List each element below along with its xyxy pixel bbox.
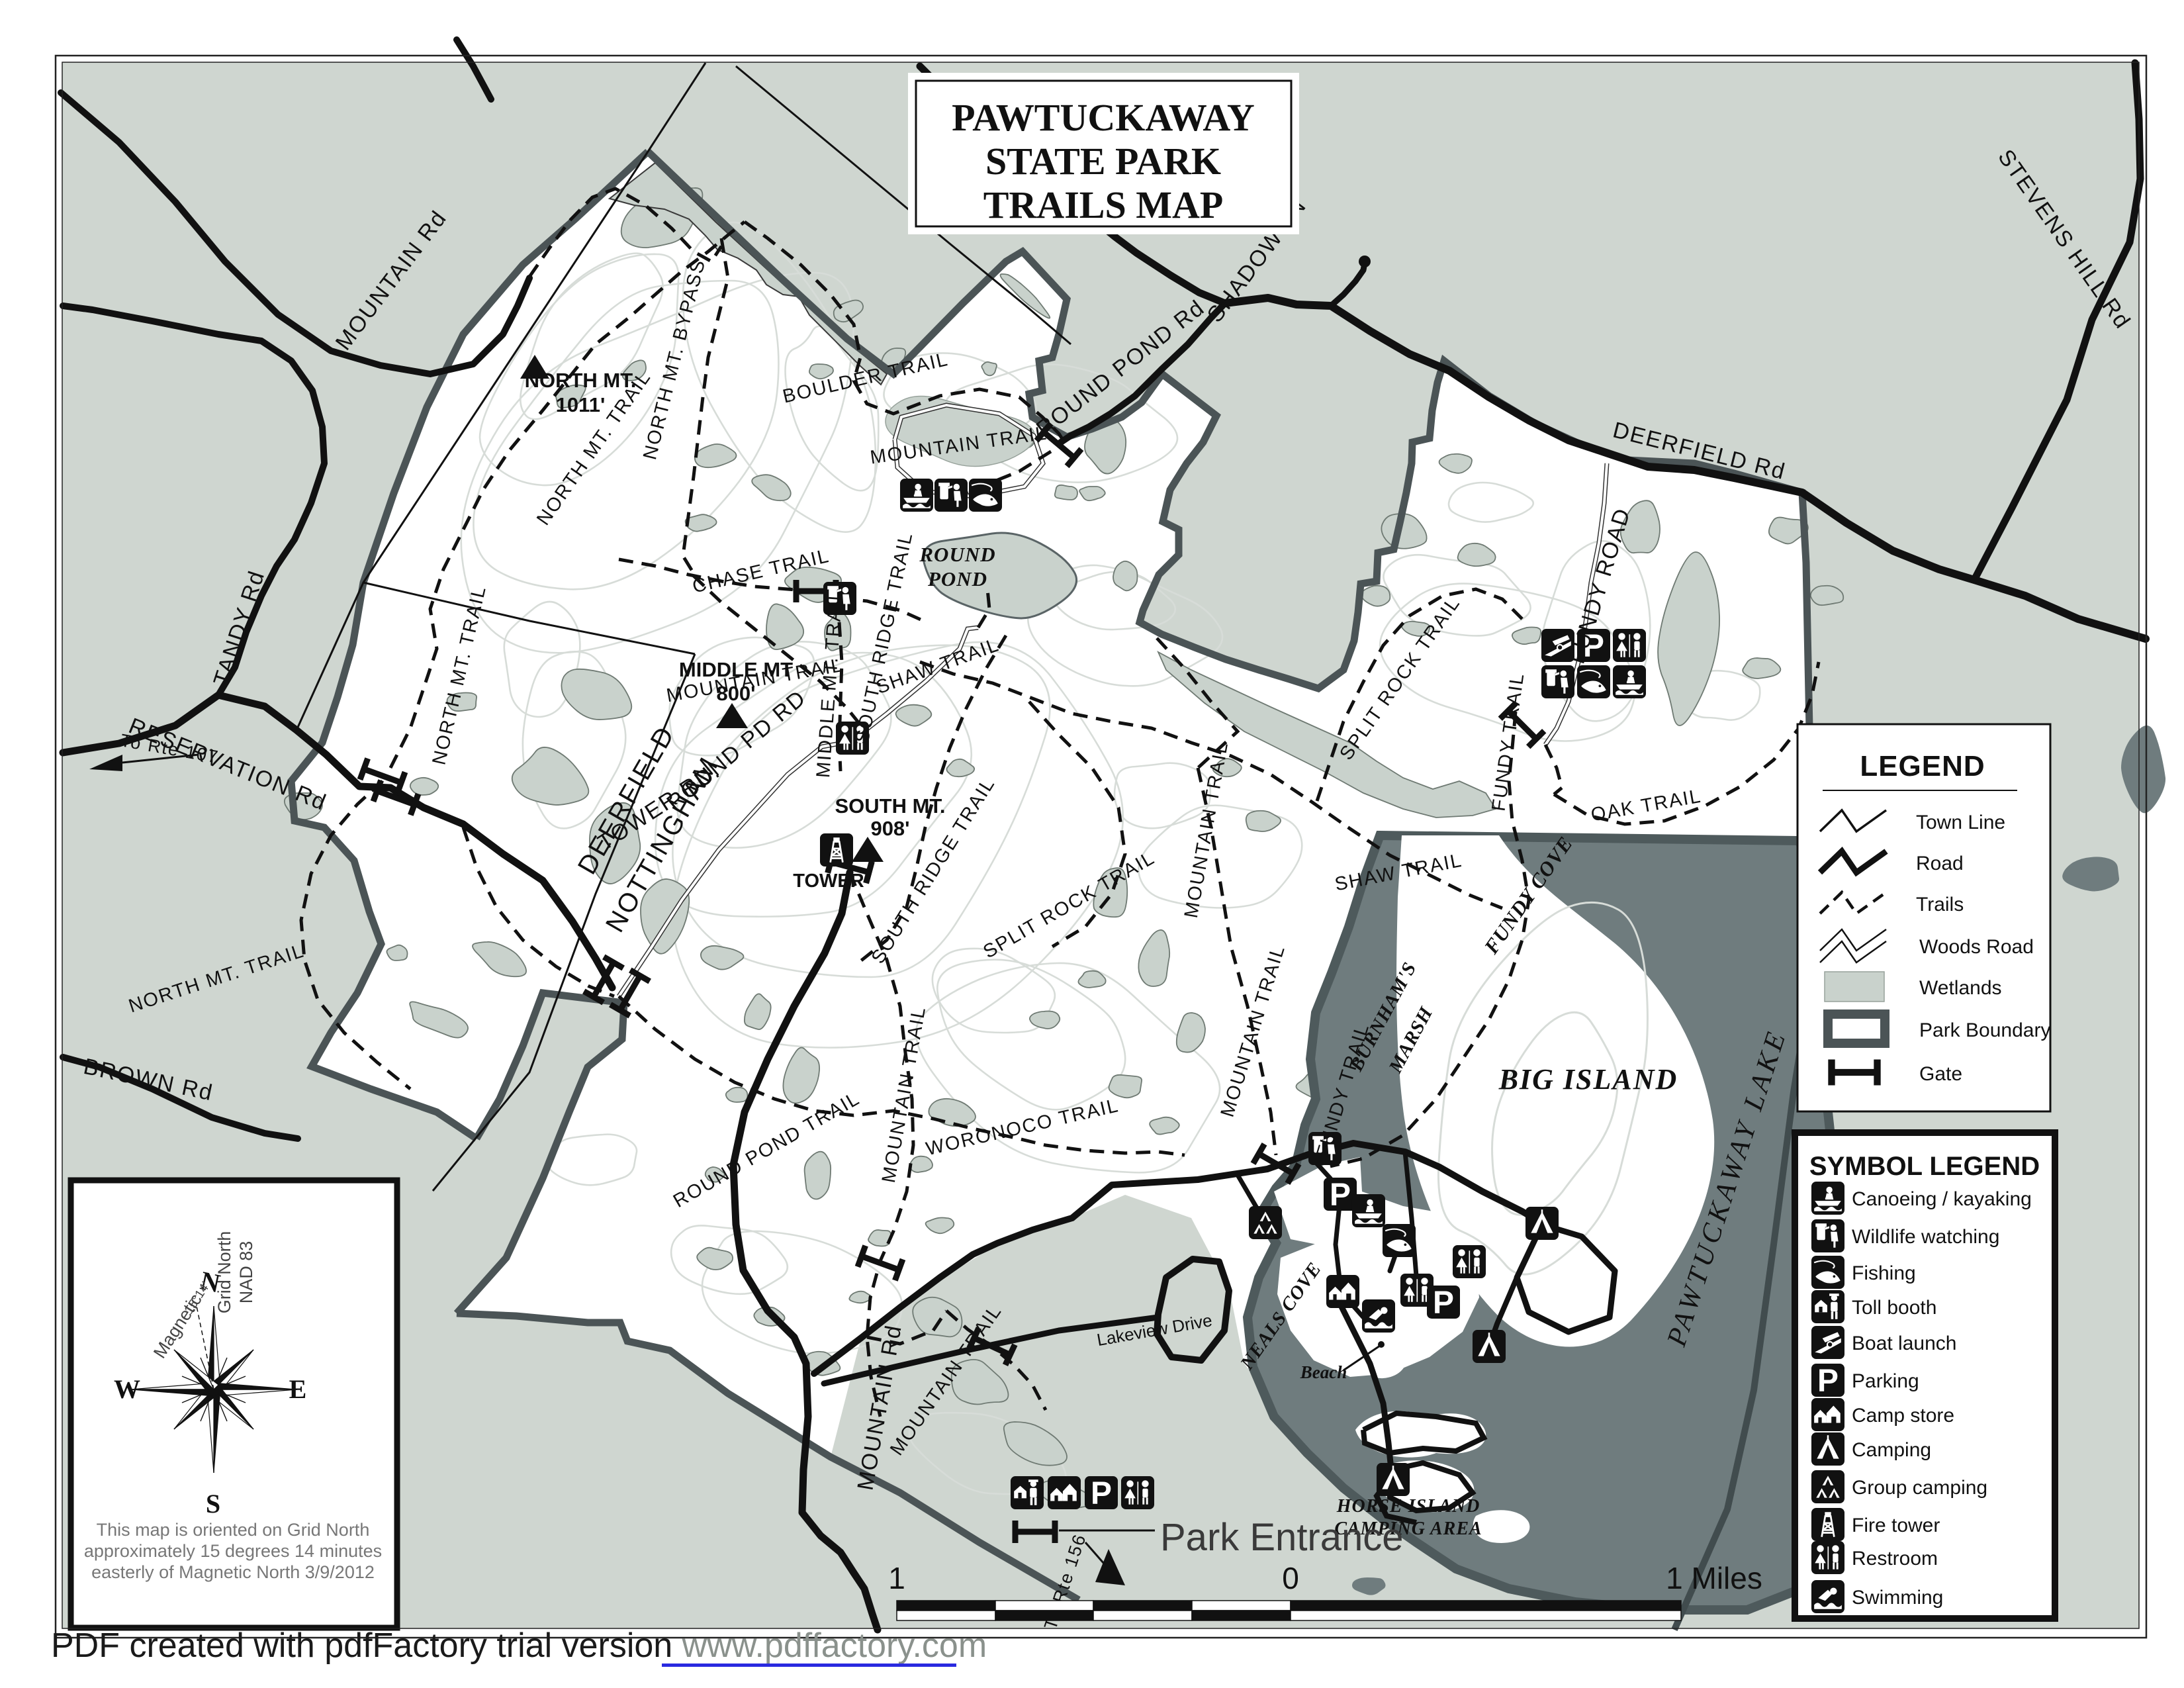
svg-text:Parking: Parking (1852, 1370, 1919, 1392)
svg-text:BIG ISLAND: BIG ISLAND (1498, 1063, 1678, 1096)
svg-text:Road: Road (1916, 853, 1964, 874)
svg-text:approximately 15 degrees 14 mi: approximately 15 degrees 14 minutes (84, 1541, 382, 1561)
svg-text:W: W (114, 1374, 142, 1404)
svg-text:STATE PARK: STATE PARK (985, 140, 1221, 183)
svg-text:1 Miles: 1 Miles (1666, 1561, 1762, 1595)
svg-text:ROUND: ROUND (919, 543, 995, 566)
svg-text:Restroom: Restroom (1852, 1548, 1938, 1570)
svg-text:TOWER: TOWER (793, 870, 864, 892)
svg-text:HORSE ISLAND: HORSE ISLAND (1336, 1496, 1480, 1517)
svg-text:Group camping: Group camping (1852, 1477, 1987, 1499)
svg-text:Fire tower: Fire tower (1852, 1515, 1940, 1536)
svg-text:Swimming: Swimming (1852, 1587, 1943, 1609)
svg-text:This map is oriented on Grid N: This map is oriented on Grid North (97, 1520, 370, 1540)
svg-text:1011': 1011' (556, 393, 606, 416)
svg-text:Trails: Trails (1916, 894, 1964, 915)
svg-text:POND: POND (927, 567, 987, 590)
svg-text:NAD 83: NAD 83 (236, 1241, 256, 1304)
svg-text:Camp store: Camp store (1852, 1405, 1954, 1427)
svg-text:Town Line: Town Line (1916, 812, 2005, 833)
svg-text:Wetlands: Wetlands (1919, 977, 2002, 999)
svg-text:Fishing: Fishing (1852, 1262, 1916, 1284)
svg-text:Beach: Beach (1300, 1362, 1347, 1382)
svg-text:LEGEND: LEGEND (1860, 750, 1985, 782)
svg-text:Grid North: Grid North (214, 1231, 234, 1314)
svg-text:1: 1 (888, 1561, 905, 1595)
svg-text:SOUTH MT.: SOUTH MT. (835, 794, 945, 818)
svg-text:MIDDLE MT: MIDDLE MT (679, 658, 793, 681)
svg-text:800': 800' (716, 682, 755, 705)
svg-text:E: E (289, 1374, 308, 1404)
svg-text:Wildlife watching: Wildlife watching (1852, 1226, 1999, 1248)
svg-text:easterly of Magnetic North 3/9: easterly of Magnetic North 3/9/2012 (91, 1562, 375, 1582)
svg-text:Woods Road: Woods Road (1919, 936, 2034, 958)
svg-text:SYMBOL LEGEND: SYMBOL LEGEND (1809, 1152, 2040, 1181)
svg-text:Gate: Gate (1919, 1063, 1962, 1085)
svg-text:0: 0 (1282, 1561, 1299, 1595)
svg-text:PAWTUCKAWAY: PAWTUCKAWAY (952, 96, 1255, 139)
svg-text:Camping: Camping (1852, 1439, 1931, 1461)
svg-text:Toll booth: Toll booth (1852, 1297, 1936, 1319)
svg-text:Park Entrance: Park Entrance (1160, 1516, 1404, 1559)
svg-text:S: S (206, 1489, 222, 1519)
svg-text:PDF created with pdfFactory tr: PDF created with pdfFactory trial versio… (51, 1626, 987, 1665)
svg-text:NORTH MT.: NORTH MT. (525, 369, 637, 392)
svg-text:Park Boundary: Park Boundary (1919, 1019, 2050, 1041)
svg-text:TRAILS MAP: TRAILS MAP (983, 183, 1224, 226)
svg-text:Canoeing / kayaking: Canoeing / kayaking (1852, 1188, 2032, 1210)
svg-text:Boat launch: Boat launch (1852, 1333, 1956, 1354)
svg-text:908': 908' (870, 817, 909, 840)
